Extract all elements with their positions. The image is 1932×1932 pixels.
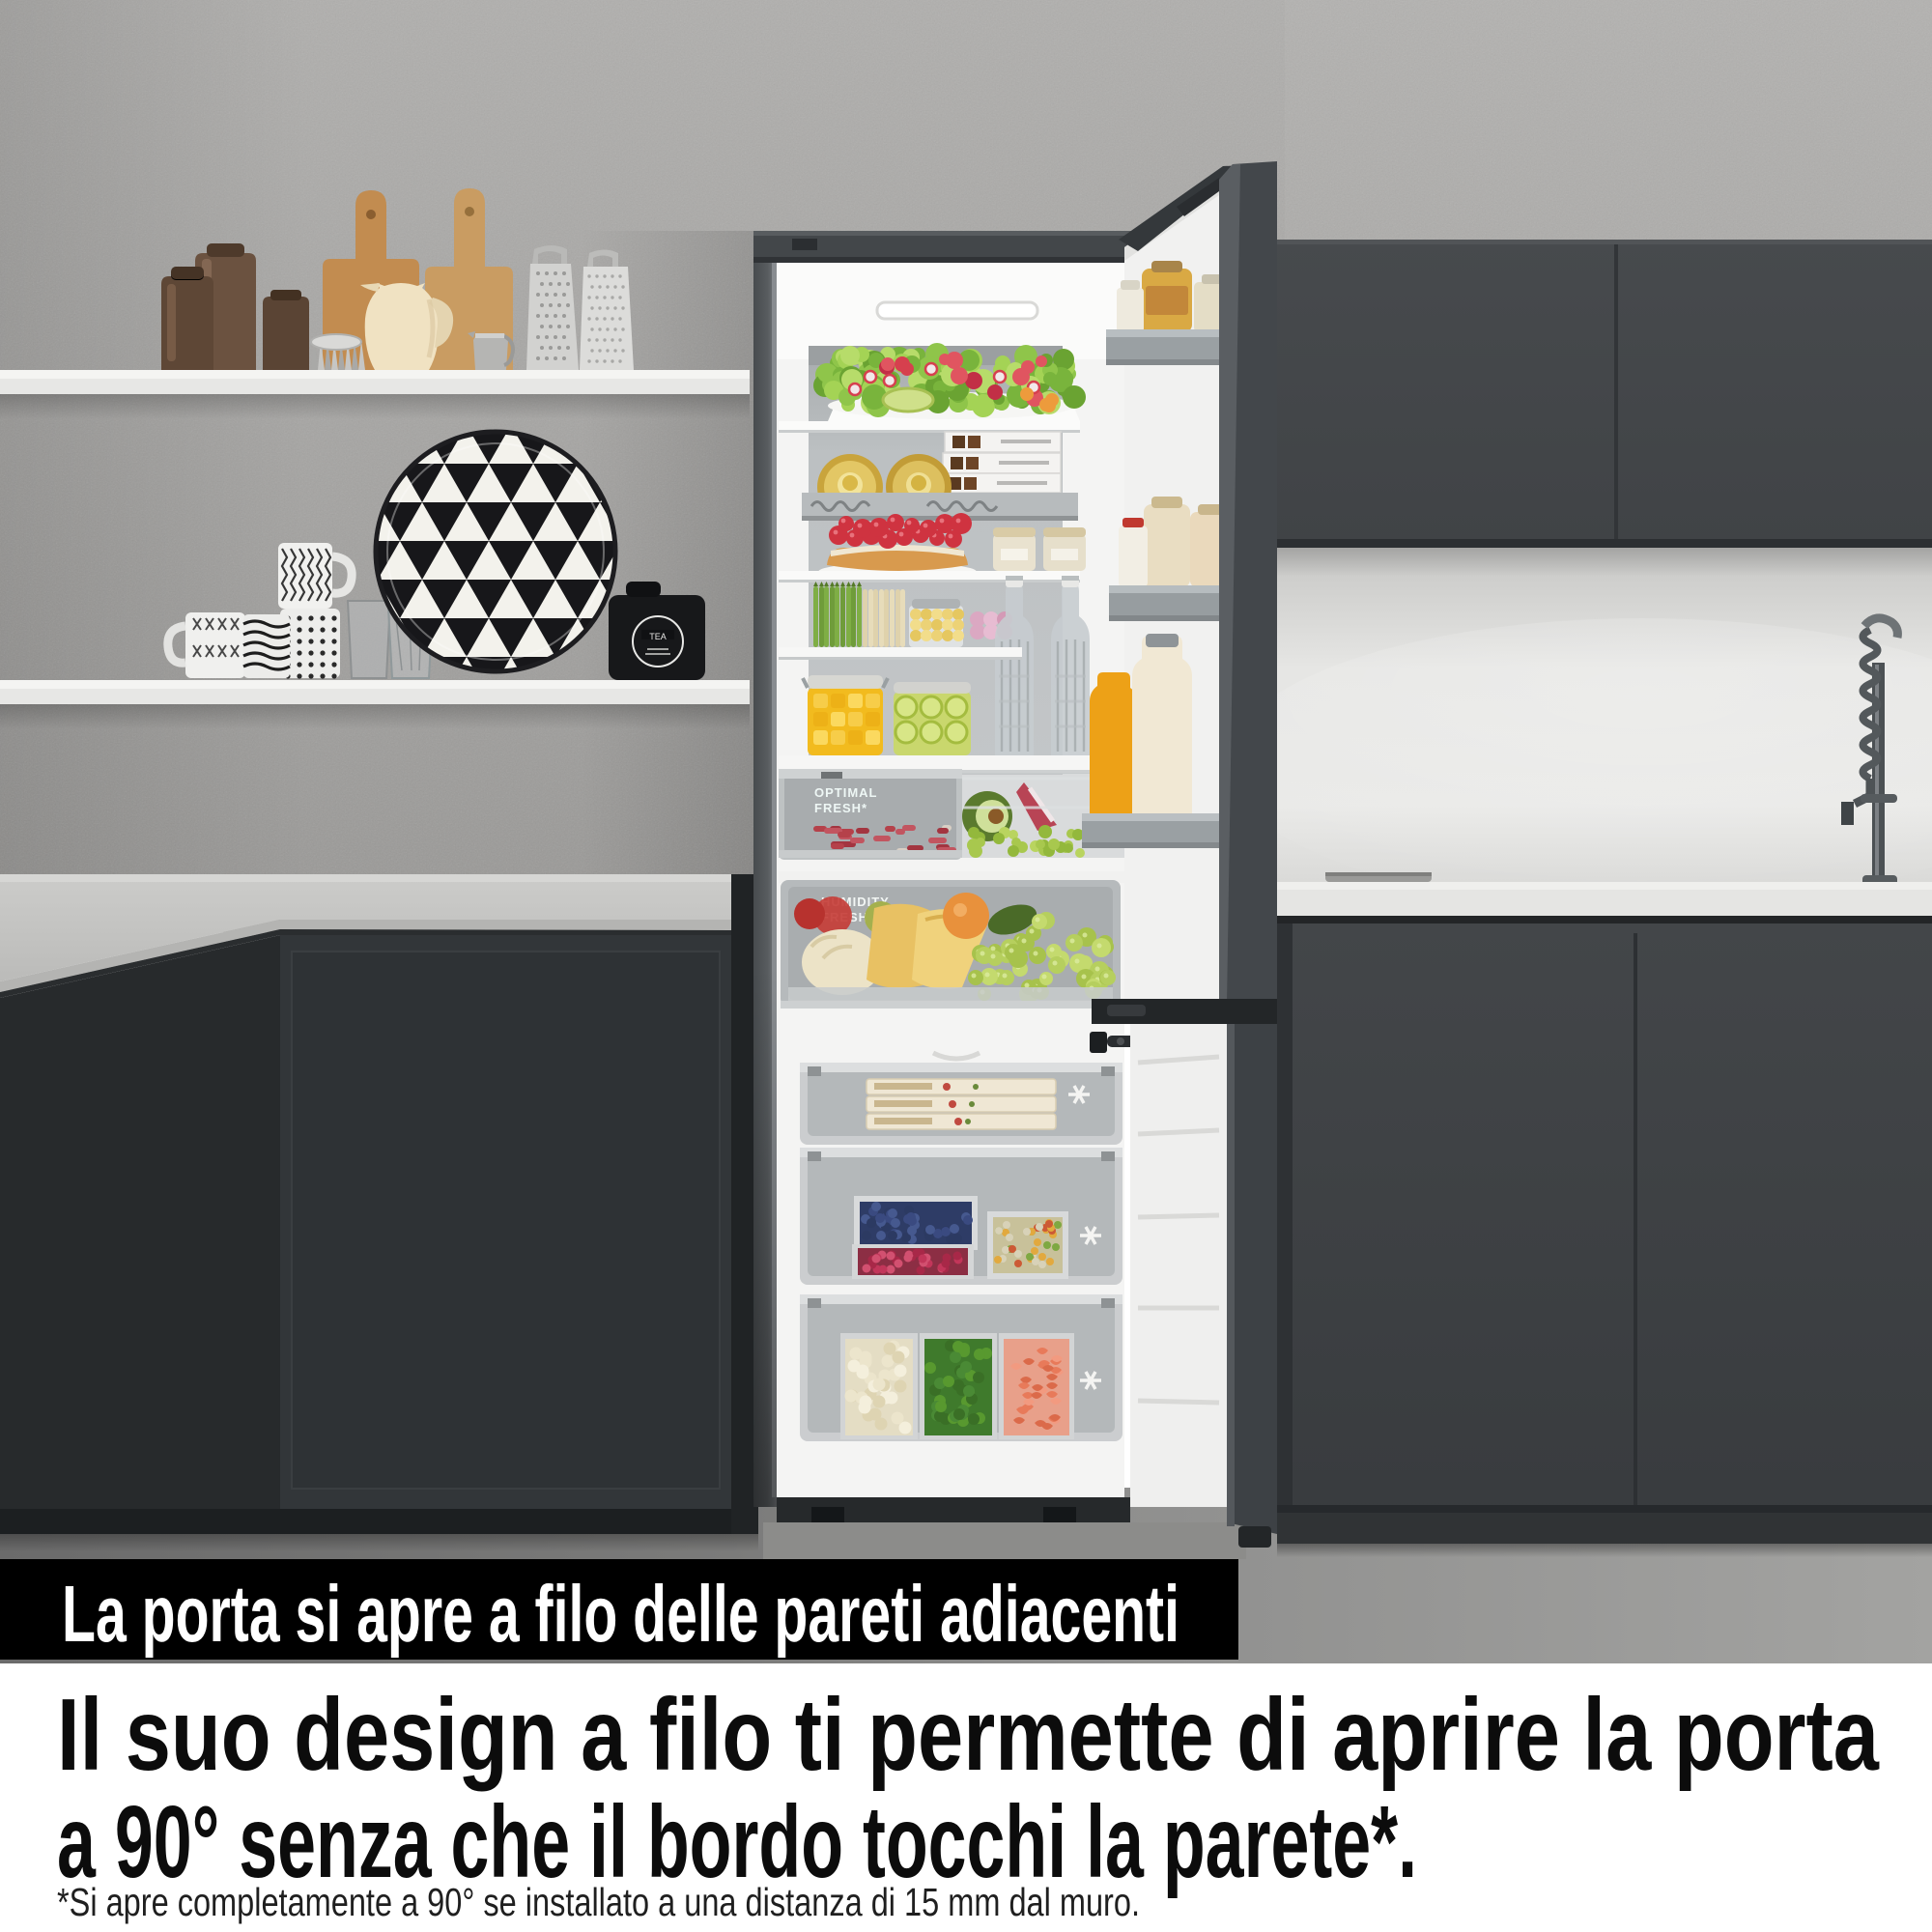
svg-text:FRESH*: FRESH*: [814, 801, 867, 815]
svg-text:*Si apre completamente a 90° s: *Si apre completamente a 90° se installa…: [57, 1880, 1140, 1924]
svg-text:OPTIMAL: OPTIMAL: [814, 785, 878, 800]
svg-text:Il suo design a filo ti permet: Il suo design a filo ti permette di apri…: [57, 1678, 1880, 1792]
svg-text:La porta si apre a filo delle: La porta si apre a filo delle pareti adi…: [62, 1569, 1179, 1659]
svg-text:TEA: TEA: [649, 632, 667, 641]
